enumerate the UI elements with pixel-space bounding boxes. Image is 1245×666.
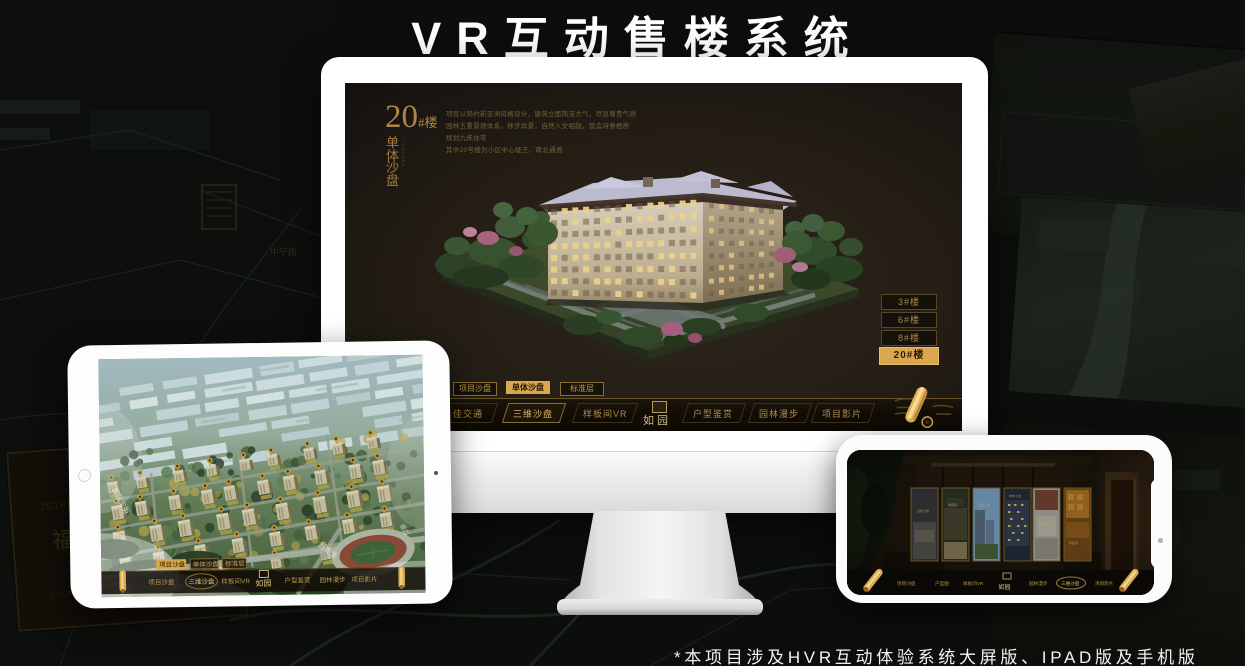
svg-text:标准层: 标准层 [225,559,245,568]
svg-text:项目影片: 项目影片 [351,574,377,583]
svg-text:如园: 如园 [999,583,1011,591]
svg-text:项目影片: 项目影片 [1095,580,1114,587]
svg-text:项目沙盘: 项目沙盘 [148,577,175,586]
svg-text:三维沙盘: 三维沙盘 [188,577,215,586]
svg-text:如园: 如园 [255,578,271,588]
svg-text:中宁街: 中宁街 [270,246,297,257]
svg-text:户型图: 户型图 [935,580,949,587]
svg-text:项目沙盘: 项目沙盘 [159,560,186,569]
svg-text:样板间VR: 样板间VR [221,576,250,585]
svg-text:样板间VR: 样板间VR [963,580,984,587]
svg-text:户型鉴赏: 户型鉴赏 [284,575,311,584]
svg-text:项目沙盘: 项目沙盘 [897,580,916,587]
svg-text:单体沙盘: 单体沙盘 [193,559,220,568]
svg-text:园林漫步: 园林漫步 [1029,580,1048,587]
svg-text:园林漫步: 园林漫步 [319,575,346,584]
svg-text:三维沙盘: 三维沙盘 [1061,580,1080,587]
